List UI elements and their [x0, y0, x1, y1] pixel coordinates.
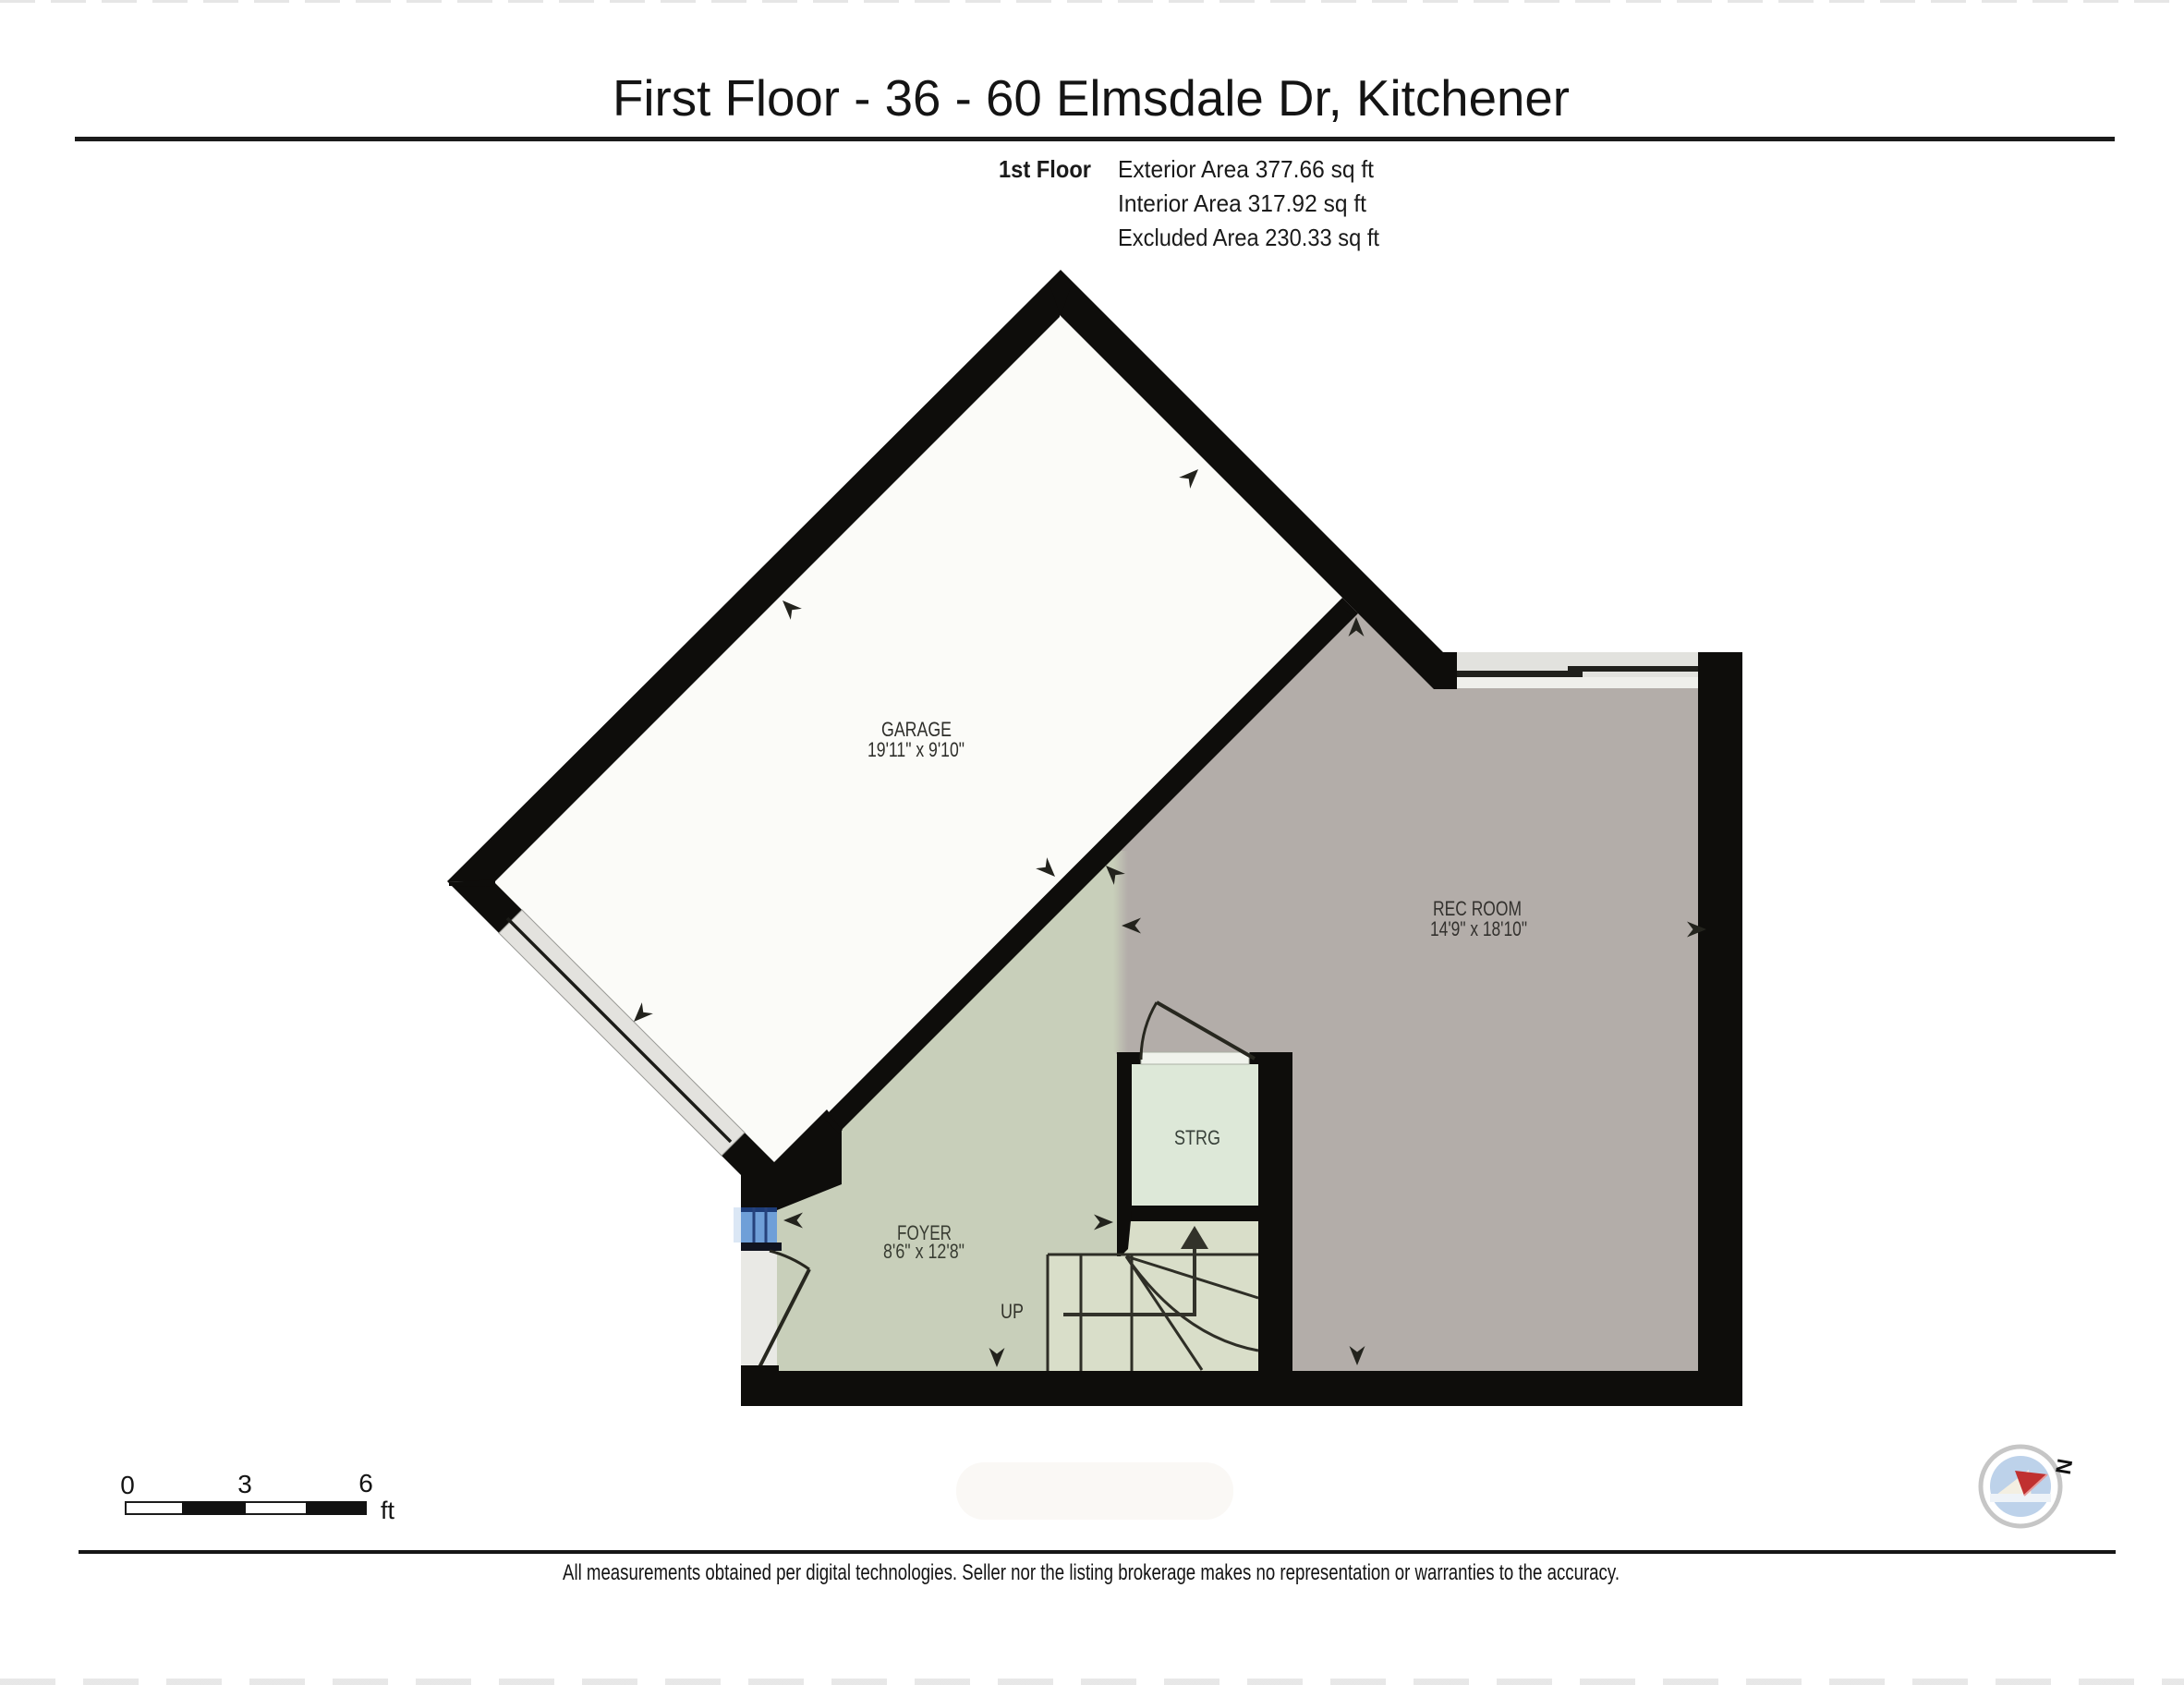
svg-text:14'9" x 18'10": 14'9" x 18'10": [1430, 917, 1527, 940]
svg-text:6: 6: [358, 1469, 373, 1497]
svg-text:All measurements obtained per: All measurements obtained per digital te…: [563, 1560, 1620, 1585]
svg-text:STRG: STRG: [1174, 1126, 1220, 1149]
svg-text:UP: UP: [1001, 1300, 1024, 1323]
svg-text:8'6" x 12'8": 8'6" x 12'8": [883, 1240, 965, 1263]
svg-text:0: 0: [120, 1471, 135, 1499]
svg-text:ft: ft: [381, 1497, 395, 1524]
svg-text:3: 3: [237, 1470, 252, 1498]
svg-text:19'11" x 9'10": 19'11" x 9'10": [868, 738, 965, 761]
